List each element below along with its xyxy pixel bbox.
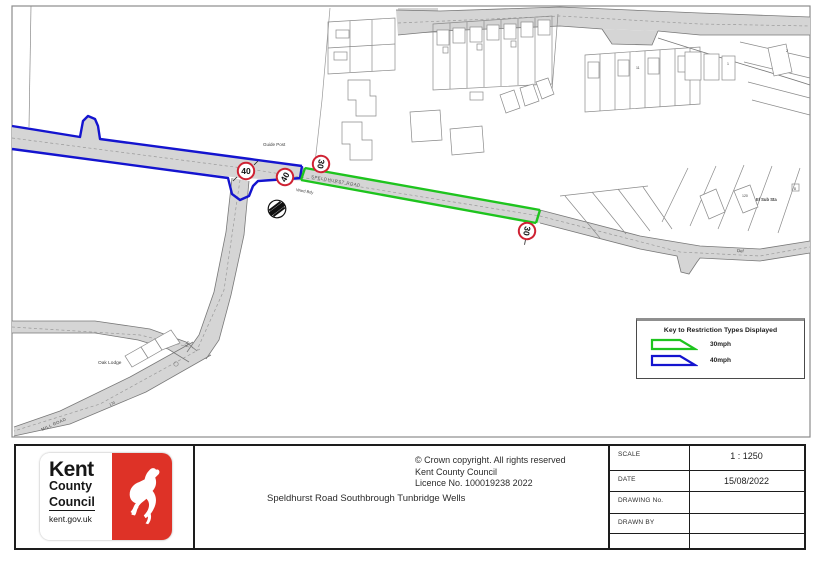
- logo-url: kent.gov.uk: [49, 514, 112, 524]
- house-number-label: 8: [794, 187, 796, 191]
- legend-item-40mph: 40mph: [650, 354, 804, 366]
- guide-post-label: Guide Post: [263, 142, 286, 147]
- copyright-block: © Crown copyright. All rights reserved K…: [415, 455, 566, 490]
- sign-30-text: 30: [521, 225, 533, 236]
- white-horse-icon: [120, 461, 164, 533]
- logo-council: Council: [49, 495, 95, 511]
- copyright-line: Kent County Council: [415, 467, 566, 479]
- legend-40mph-label: 40mph: [710, 357, 731, 364]
- traffic-order-map-page: 40 40 30 30 Guide Post SPELDHURST ROAD W…: [0, 0, 820, 562]
- scale-value: 1 : 1250: [689, 451, 804, 461]
- table-column-divider: [689, 446, 690, 548]
- drawing-title: Speldhurst Road Southbrough Tunbridge We…: [267, 493, 465, 504]
- table-row-drawing-no: DRAWING No.: [610, 492, 804, 514]
- drawing-no-label: DRAWING No.: [618, 497, 663, 504]
- legend-title: Key to Restriction Types Displayed: [637, 327, 804, 334]
- date-label: DATE: [618, 476, 636, 483]
- sign-30-text: 30: [315, 158, 327, 169]
- title-block: Kent County Council kent.gov.uk © Crown …: [14, 444, 806, 550]
- legend-40mph-symbol: [650, 354, 698, 367]
- table-row-drawn-by: DRAWN BY: [610, 514, 804, 534]
- table-row-empty: [610, 534, 804, 548]
- drawing-info-cell: © Crown copyright. All rights reserved K…: [197, 446, 608, 548]
- oak-lodge-label: Oak Lodge: [98, 360, 122, 366]
- legend-30mph-label: 30mph: [710, 341, 731, 348]
- legend-item-30mph: 30mph: [650, 338, 804, 350]
- logo-text-panel: Kent County Council kent.gov.uk: [40, 453, 112, 540]
- logo-kent: Kent: [49, 460, 112, 480]
- table-row-scale: SCALE 1 : 1250: [610, 446, 804, 471]
- def-boundary-label: Def: [737, 248, 745, 254]
- logo-county: County: [49, 480, 112, 493]
- plot-number-label: 120: [742, 194, 748, 198]
- kent-county-council-logo: Kent County Council kent.gov.uk: [40, 453, 172, 540]
- sign-40-text: 40: [241, 166, 251, 176]
- legend-box: Key to Restriction Types Displayed 30mph…: [636, 318, 805, 379]
- drawn-by-label: DRAWN BY: [618, 519, 654, 526]
- logo-horse-panel: [112, 453, 172, 540]
- legend-30mph-symbol: [650, 338, 698, 351]
- house-number-label: 11: [636, 66, 640, 70]
- logo-cell: Kent County Council kent.gov.uk: [16, 446, 195, 548]
- house-number-label: 1: [727, 62, 729, 66]
- scale-label: SCALE: [618, 451, 640, 458]
- date-value: 15/08/2022: [689, 476, 804, 486]
- copyright-line: Licence No. 100019238 2022: [415, 478, 566, 490]
- table-row-date: DATE 15/08/2022: [610, 471, 804, 492]
- el-sub-sta-label: El Sub Sta: [756, 197, 777, 202]
- house-number-label: 2: [786, 49, 788, 53]
- copyright-line: © Crown copyright. All rights reserved: [415, 455, 566, 467]
- title-block-table: SCALE 1 : 1250 DATE 15/08/2022 DRAWING N…: [608, 446, 804, 548]
